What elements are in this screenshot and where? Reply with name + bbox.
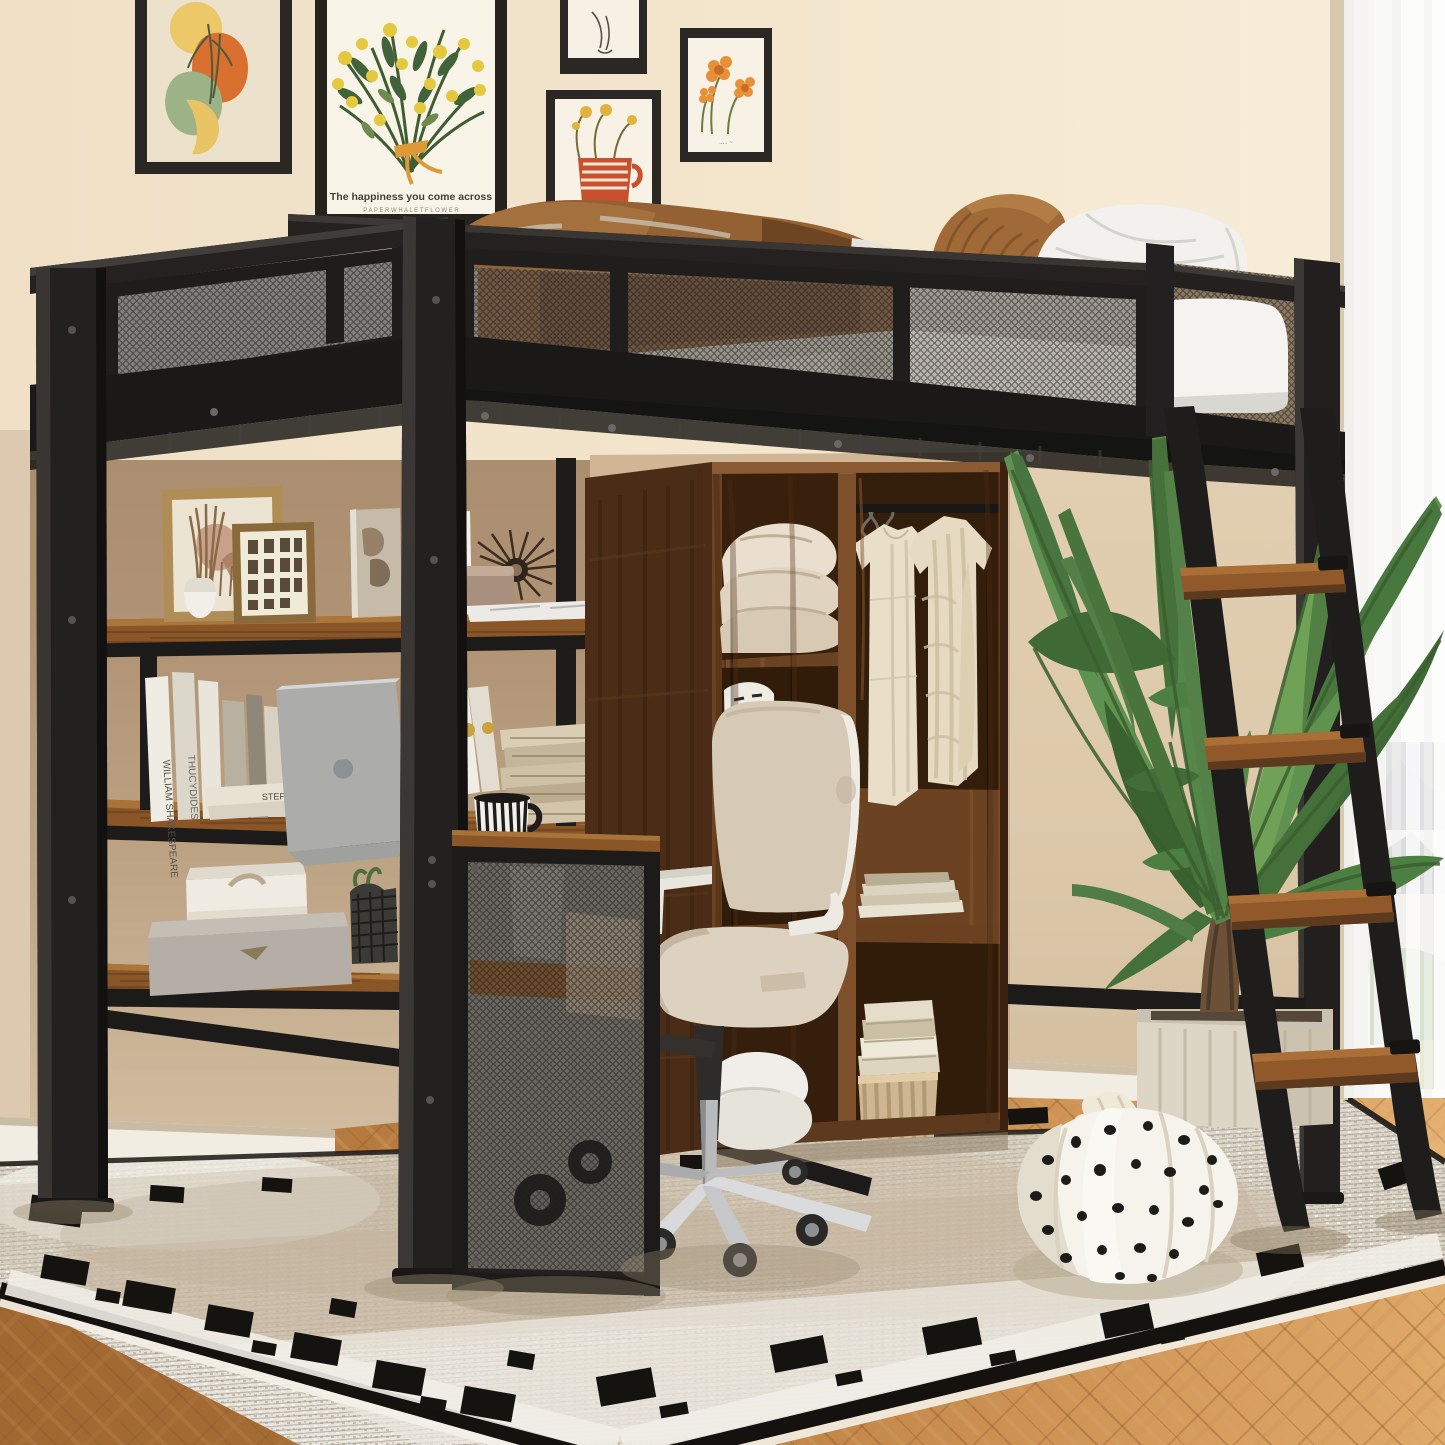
svg-text:The happiness you come across: The happiness you come across xyxy=(330,191,492,203)
svg-text:P A P E R W H A L E T F L O W: P A P E R W H A L E T F L O W E R xyxy=(363,208,459,214)
svg-text:..... ~: ..... ~ xyxy=(719,140,733,146)
